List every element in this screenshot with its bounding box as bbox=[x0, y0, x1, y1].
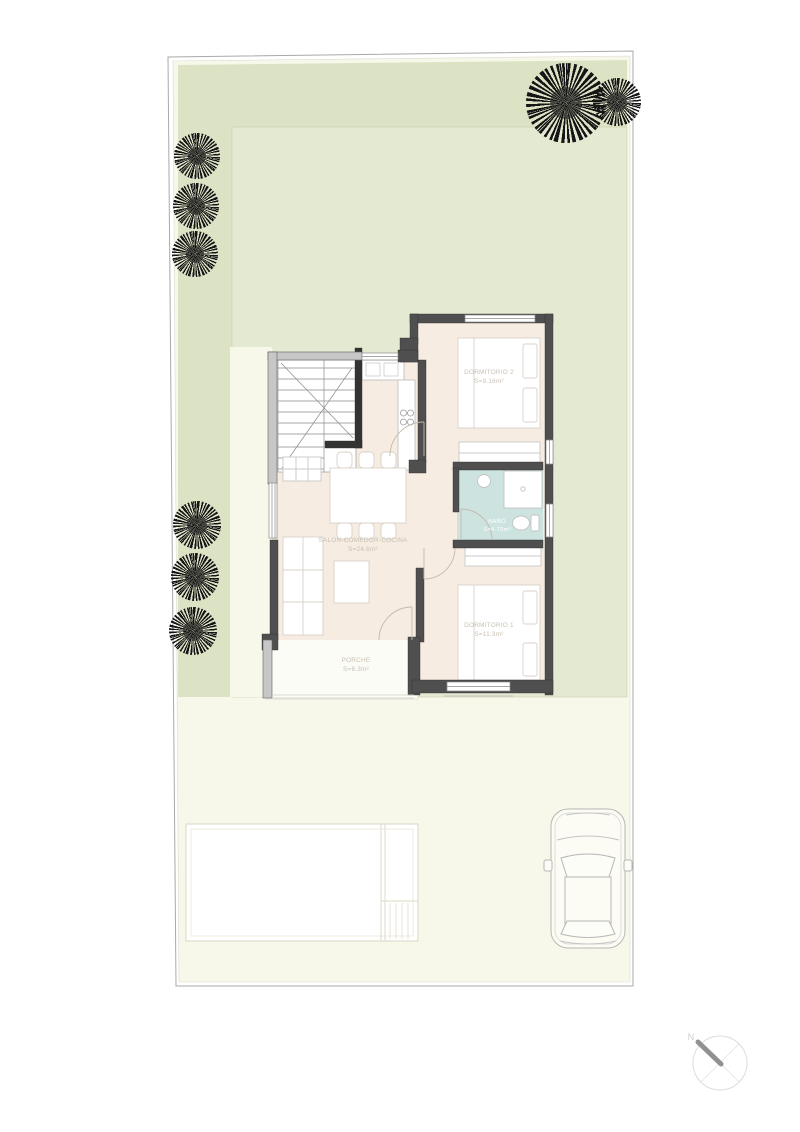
porch-label: PORCHE bbox=[342, 657, 371, 664]
pillow bbox=[523, 643, 537, 676]
bedroom2-area: S=9.16m² bbox=[474, 378, 504, 385]
porch-area: S=6.3m² bbox=[343, 666, 369, 673]
bedroom-2 bbox=[458, 338, 540, 465]
tree-icon bbox=[171, 553, 219, 601]
north-needle-icon bbox=[698, 1042, 721, 1064]
bathroom-area: S=4.70m² bbox=[483, 527, 511, 533]
shower bbox=[504, 471, 542, 508]
wardrobe bbox=[459, 442, 540, 465]
floor-plan-page: DORMITORIO 2 S=9.16m² SALON-COMEDOR-COCI… bbox=[0, 0, 800, 1132]
salon-area: S=24.6m² bbox=[348, 546, 378, 553]
pool bbox=[186, 824, 418, 941]
pillow bbox=[523, 388, 537, 422]
sink-icon bbox=[478, 475, 491, 488]
pillow bbox=[523, 591, 537, 624]
bedroom1-area: S=11.3m² bbox=[474, 631, 503, 638]
north-label: N bbox=[688, 1032, 695, 1042]
chair bbox=[337, 452, 352, 468]
chair bbox=[359, 452, 374, 468]
wardrobe bbox=[465, 547, 541, 566]
kitchen-counter bbox=[398, 380, 415, 470]
tree-icon bbox=[172, 231, 218, 277]
bedroom2-label: DORMITORIO 2 bbox=[464, 369, 514, 376]
compass: N bbox=[688, 1032, 747, 1090]
car-icon bbox=[544, 809, 632, 948]
coffee-table bbox=[334, 561, 369, 603]
chair bbox=[381, 452, 396, 468]
salon-label: SALON-COMEDOR-COCINA bbox=[318, 537, 408, 544]
bathroom-label: BAÑO bbox=[488, 518, 506, 525]
mirror bbox=[544, 860, 552, 871]
tree-icon bbox=[173, 501, 221, 549]
toilet-icon bbox=[513, 515, 540, 531]
site-plan-svg: DORMITORIO 2 S=9.16m² SALON-COMEDOR-COCI… bbox=[0, 0, 800, 1132]
tree-icon bbox=[593, 78, 641, 126]
dining-table bbox=[330, 468, 406, 523]
tree-icon bbox=[174, 133, 220, 179]
pillow bbox=[523, 344, 537, 378]
dining-set bbox=[330, 452, 406, 539]
bedroom1-label: DORMITORIO 1 bbox=[464, 622, 514, 629]
tree-icon bbox=[173, 183, 219, 229]
tree-icon bbox=[169, 607, 217, 655]
window bbox=[269, 483, 277, 538]
mirror bbox=[624, 860, 632, 871]
